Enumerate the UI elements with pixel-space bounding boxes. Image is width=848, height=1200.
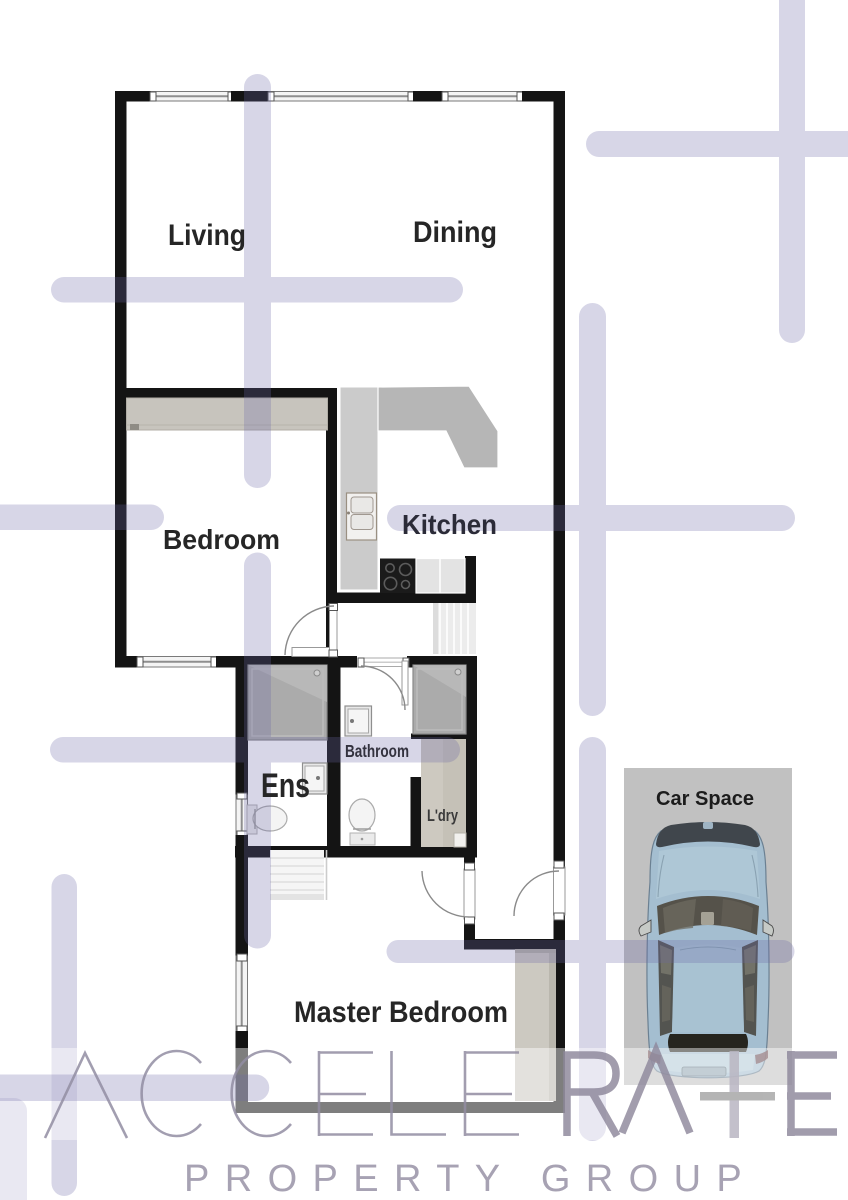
svg-text:Ens: Ens <box>261 767 310 805</box>
svg-text:L'dry: L'dry <box>427 806 458 825</box>
svg-text:PROPERTY GROUP: PROPERTY GROUP <box>184 1158 757 1200</box>
svg-text:Kitchen: Kitchen <box>402 509 497 540</box>
svg-text:Bathroom: Bathroom <box>345 741 409 761</box>
svg-text:Bedroom: Bedroom <box>163 524 280 555</box>
svg-text:Car Space: Car Space <box>656 787 754 810</box>
svg-text:Dining: Dining <box>413 216 497 249</box>
svg-text:Living: Living <box>168 219 246 252</box>
svg-text:Master Bedroom: Master Bedroom <box>294 996 508 1029</box>
